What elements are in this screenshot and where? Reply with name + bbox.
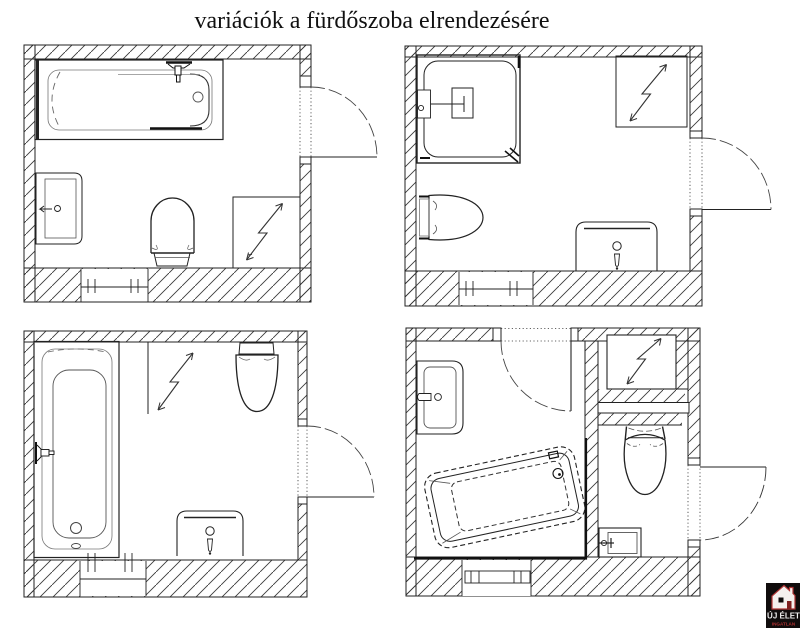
svg-text:variációk a fürdőszoba elrende: variációk a fürdőszoba elrendezésére	[194, 8, 549, 34]
svg-text:INGATLAN: INGATLAN	[772, 622, 796, 627]
svg-text:ÚJ ÉLET: ÚJ ÉLET	[767, 612, 800, 621]
